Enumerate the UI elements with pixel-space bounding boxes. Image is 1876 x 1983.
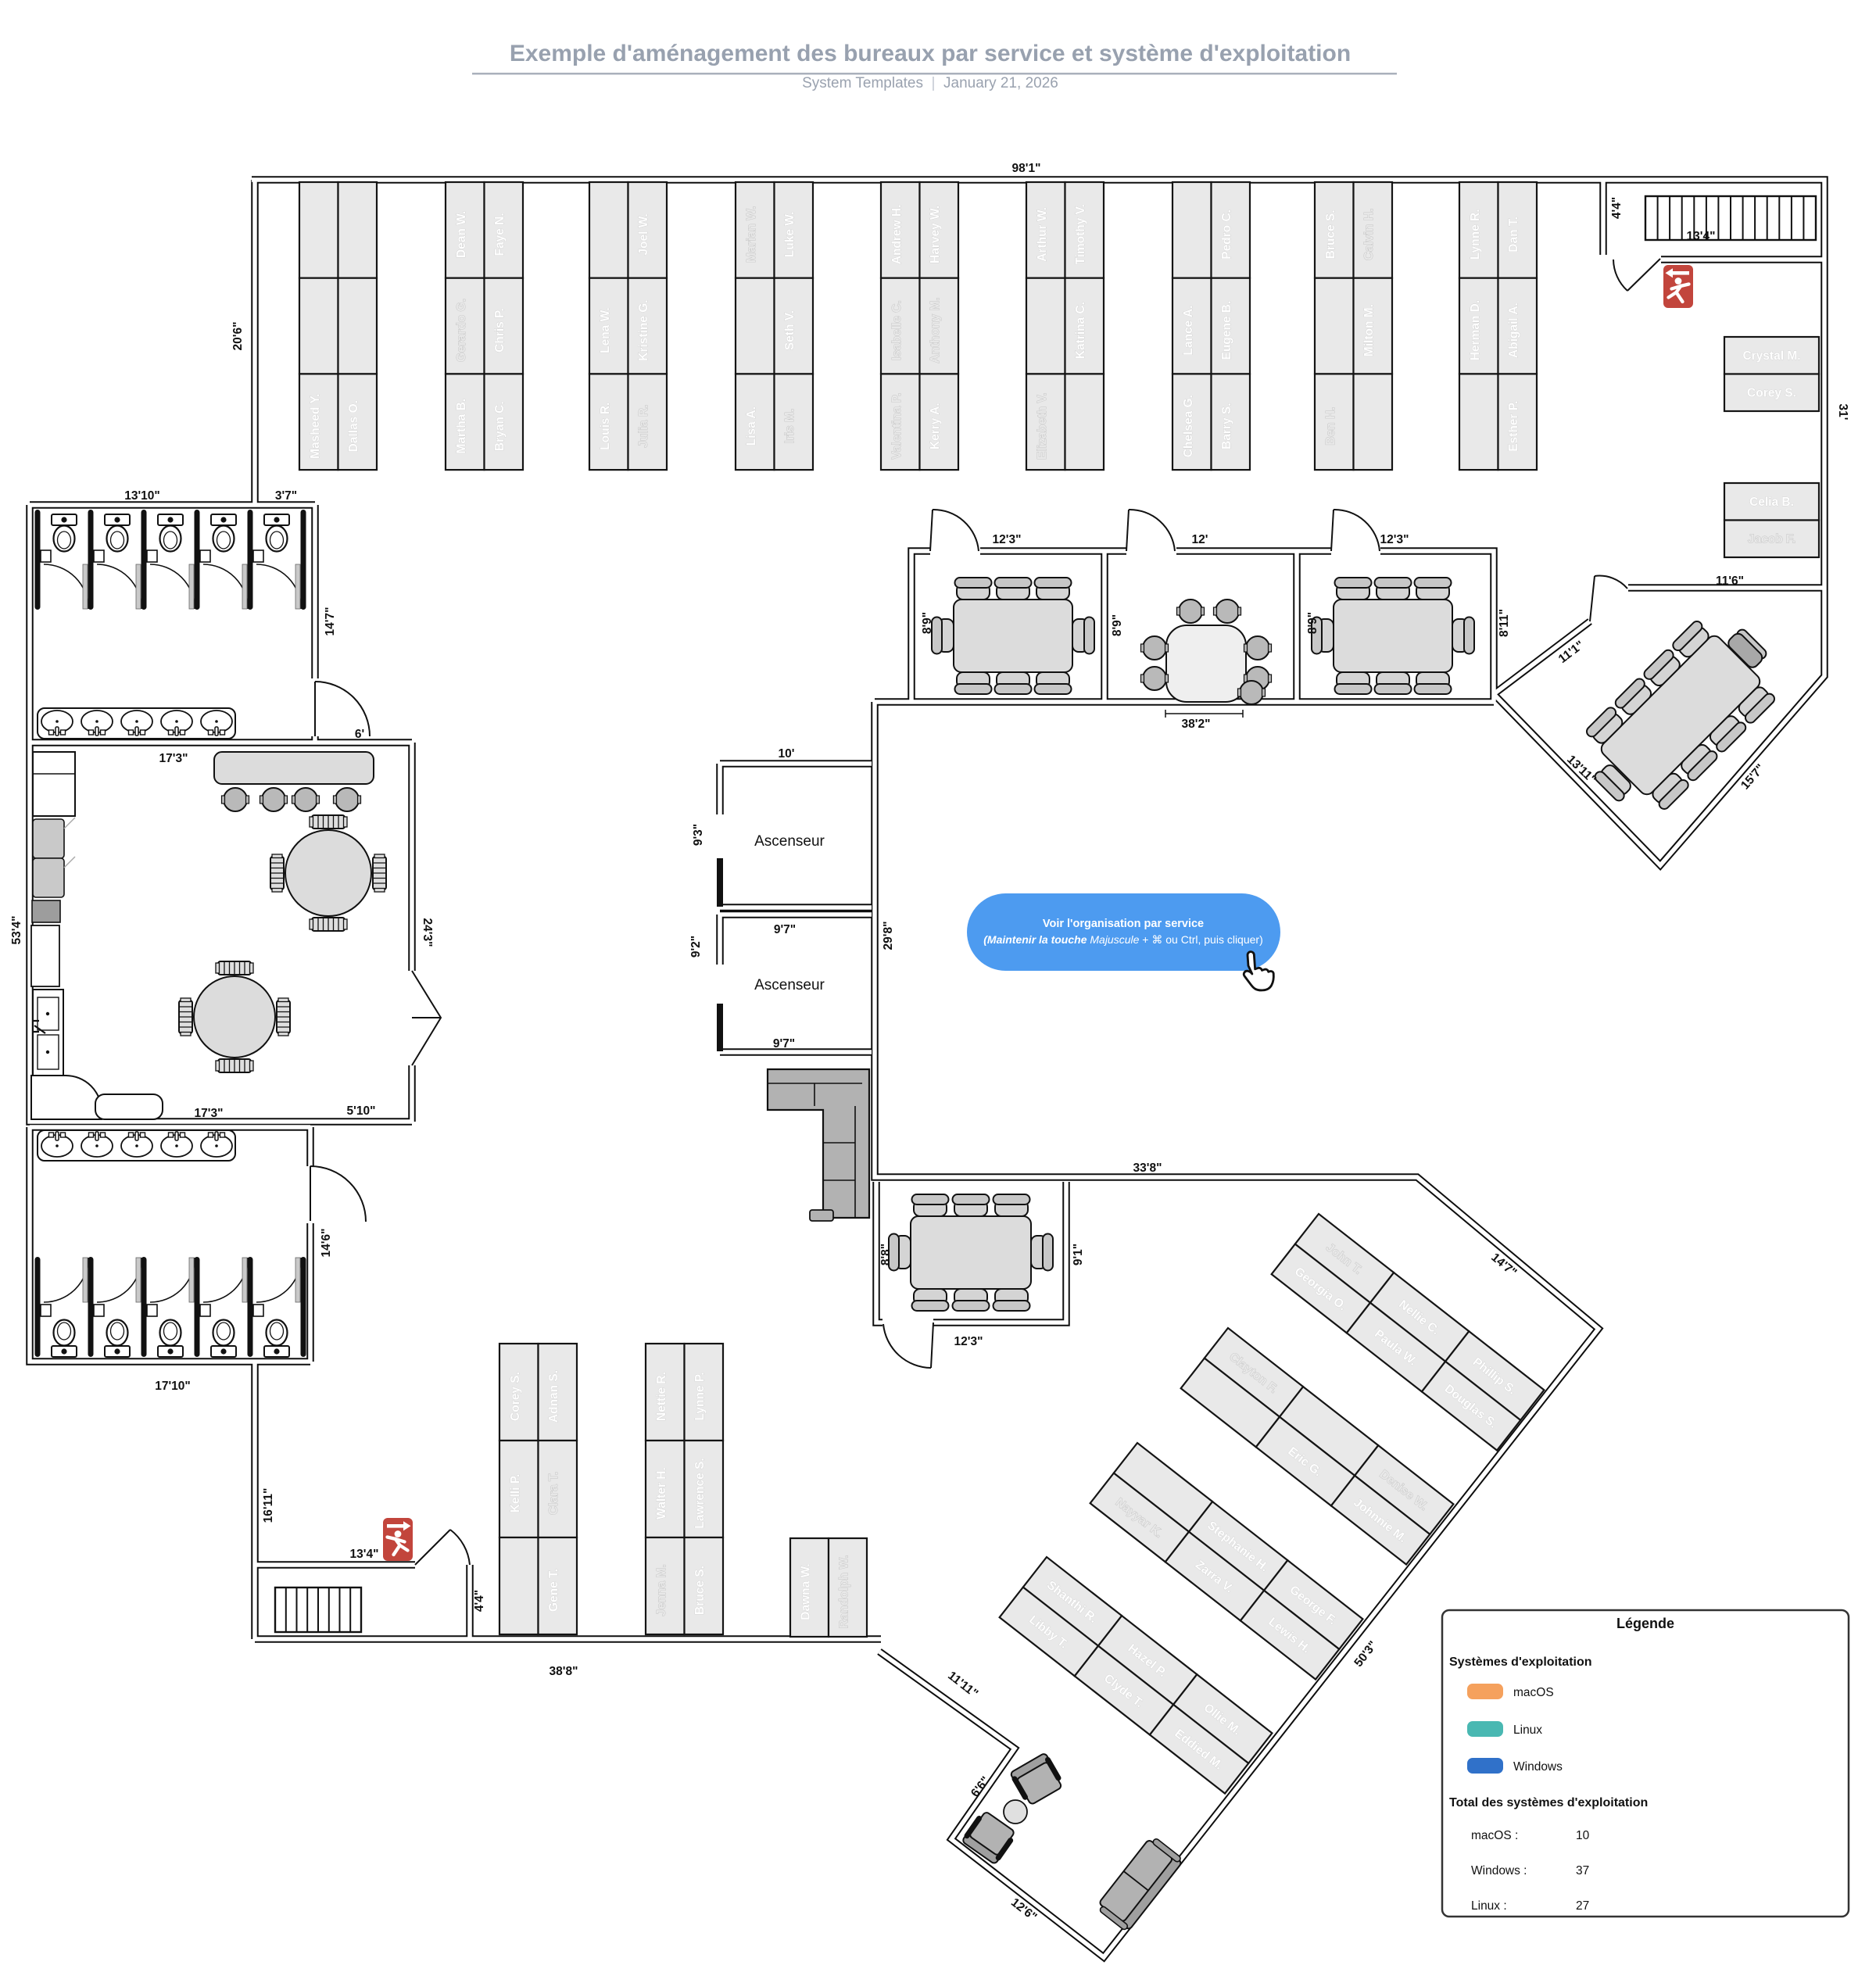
svg-text:9'1": 9'1" <box>1072 1244 1085 1265</box>
svg-text:Walter H.: Walter H. <box>655 1467 668 1519</box>
svg-text:9'7": 9'7" <box>773 1037 795 1051</box>
svg-text:Lena W.: Lena W. <box>599 307 612 353</box>
svg-text:Anthony M.: Anthony M. <box>929 297 942 363</box>
svg-text:12'3": 12'3" <box>993 533 1022 546</box>
svg-text:Corey S.: Corey S. <box>1747 387 1796 400</box>
svg-text:Windows :: Windows : <box>1471 1864 1527 1877</box>
svg-text:Isabelle C.: Isabelle C. <box>890 300 904 360</box>
svg-text:8'9": 8'9" <box>1111 614 1124 636</box>
svg-text:Kerry A.: Kerry A. <box>929 403 942 449</box>
svg-text:4'4": 4'4" <box>1610 197 1624 219</box>
svg-text:Valentina P.: Valentina P. <box>890 393 904 460</box>
svg-text:14'7": 14'7" <box>324 607 337 636</box>
svg-text:Chelsea G.: Chelsea G. <box>1182 395 1195 457</box>
svg-text:Dean W.: Dean W. <box>455 211 468 258</box>
svg-text:Abigail A.: Abigail A. <box>1507 302 1520 358</box>
svg-text:Voir l'organisation par servic: Voir l'organisation par service <box>1043 918 1204 930</box>
svg-text:Marian W.: Marian W. <box>745 206 758 263</box>
svg-text:31': 31' <box>1836 404 1849 421</box>
svg-text:Clara T.: Clara T. <box>547 1472 560 1515</box>
svg-text:13'10": 13'10" <box>124 489 160 503</box>
svg-text:10: 10 <box>1576 1829 1590 1842</box>
svg-text:Harvey W.: Harvey W. <box>929 206 942 263</box>
svg-text:Andrew H.: Andrew H. <box>890 205 904 265</box>
svg-text:Chris P.: Chris P. <box>493 308 507 353</box>
svg-text:38'2": 38'2" <box>1182 718 1211 731</box>
svg-text:Pedro C.: Pedro C. <box>1220 209 1233 260</box>
svg-text:Bruce S.: Bruce S. <box>1324 209 1337 259</box>
svg-text:Kelli P.: Kelli P. <box>509 1474 522 1513</box>
svg-text:13'4": 13'4" <box>1687 230 1716 243</box>
svg-text:System Templates | January 2: System Templates | January 21, 2026 <box>802 75 1058 91</box>
svg-text:Lawrence S.: Lawrence S. <box>693 1458 707 1528</box>
svg-text:Gerardo G.: Gerardo G. <box>455 299 468 362</box>
svg-text:Milton M.: Milton M. <box>1362 304 1376 356</box>
svg-text:33'8": 33'8" <box>1133 1162 1162 1175</box>
svg-text:9'3": 9'3" <box>692 824 705 846</box>
svg-text:Luke W.: Luke W. <box>783 212 797 258</box>
svg-text:8'9": 8'9" <box>921 612 934 634</box>
svg-text:29'8": 29'8" <box>882 922 895 950</box>
svg-text:Seth V.: Seth V. <box>783 310 797 350</box>
svg-text:Bryan C.: Bryan C. <box>493 401 507 451</box>
svg-text:Louis R.: Louis R. <box>599 403 612 450</box>
svg-text:14'6": 14'6" <box>320 1229 333 1258</box>
svg-text:Légende: Légende <box>1616 1616 1674 1631</box>
svg-text:Iris M.: Iris M. <box>783 409 797 444</box>
svg-text:Kristine G.: Kristine G. <box>637 299 650 360</box>
svg-text:5'10": 5'10" <box>347 1104 376 1118</box>
svg-text:Arthur W.: Arthur W. <box>1036 207 1049 262</box>
svg-text:27: 27 <box>1576 1899 1589 1913</box>
svg-text:Linux: Linux <box>1513 1723 1542 1737</box>
svg-text:20'6": 20'6" <box>231 322 245 351</box>
svg-text:9'7": 9'7" <box>774 923 796 936</box>
svg-text:Exemple d'aménagement des bure: Exemple d'aménagement des bureaux par se… <box>510 41 1351 66</box>
svg-text:Ascenseur: Ascenseur <box>754 977 825 993</box>
svg-text:Dan T.: Dan T. <box>1507 217 1520 252</box>
svg-text:11'6": 11'6" <box>1716 574 1744 588</box>
svg-text:Herman D.: Herman D. <box>1469 300 1482 361</box>
svg-text:3'7": 3'7" <box>275 489 297 503</box>
svg-text:Katrina C.: Katrina C. <box>1074 302 1087 359</box>
svg-text:Jenna M.: Jenna M. <box>655 1564 668 1616</box>
svg-text:37: 37 <box>1576 1864 1589 1877</box>
svg-text:17'3": 17'3" <box>159 752 188 765</box>
svg-text:8'9": 8'9" <box>1306 612 1319 634</box>
svg-text:Crystal M.: Crystal M. <box>1742 349 1800 363</box>
svg-text:Linux :: Linux : <box>1471 1899 1507 1913</box>
svg-text:6': 6' <box>355 728 364 741</box>
svg-text:16'11": 16'11" <box>262 1488 275 1523</box>
svg-text:Masheed Y.: Masheed Y. <box>309 394 322 459</box>
svg-text:Esther P.: Esther P. <box>1507 401 1520 452</box>
svg-text:Corey S.: Corey S. <box>509 1372 522 1421</box>
svg-text:17'10": 17'10" <box>155 1380 191 1393</box>
svg-text:Ascenseur: Ascenseur <box>754 833 825 850</box>
svg-text:Systèmes d'exploitation: Systèmes d'exploitation <box>1449 1655 1592 1669</box>
svg-text:13'4": 13'4" <box>350 1548 379 1561</box>
svg-text:Timothy V.: Timothy V. <box>1074 204 1087 265</box>
svg-text:24'3": 24'3" <box>421 918 434 947</box>
svg-text:Julia R.: Julia R. <box>637 405 650 448</box>
svg-text:8'11": 8'11" <box>1498 609 1511 637</box>
svg-text:Lisa A.: Lisa A. <box>745 406 758 446</box>
svg-text:53'4": 53'4" <box>10 916 23 945</box>
svg-text:Lynne R.: Lynne R. <box>1469 209 1482 260</box>
svg-text:4'4": 4'4" <box>473 1590 486 1612</box>
svg-text:9'2": 9'2" <box>689 936 703 957</box>
svg-text:Nettie R.: Nettie R. <box>655 1372 668 1421</box>
svg-text:Total des systèmes d'exploitat: Total des systèmes d'exploitation <box>1449 1796 1648 1809</box>
svg-text:38'8": 38'8" <box>550 1665 578 1678</box>
svg-text:8'8": 8'8" <box>879 1244 893 1265</box>
svg-text:(Maintenir la touche Majuscule: (Maintenir la touche Majuscule + ⌘ ou Ct… <box>983 933 1263 946</box>
svg-text:Dawna W.: Dawna W. <box>800 1563 813 1620</box>
svg-text:Ben H.: Ben H. <box>1324 407 1337 446</box>
svg-text:Lynne P.: Lynne P. <box>693 1372 707 1420</box>
svg-text:macOS :: macOS : <box>1471 1829 1518 1842</box>
svg-text:Windows: Windows <box>1513 1760 1563 1774</box>
svg-text:Adnan S.: Adnan S. <box>547 1370 560 1423</box>
svg-text:Celia B.: Celia B. <box>1749 496 1794 509</box>
svg-text:Bruce S.: Bruce S. <box>693 1566 707 1615</box>
svg-text:10': 10' <box>779 747 795 761</box>
svg-text:98'1": 98'1" <box>1012 162 1041 175</box>
svg-text:Lance A.: Lance A. <box>1182 306 1195 356</box>
svg-text:12'3": 12'3" <box>954 1335 983 1348</box>
svg-text:Dallas O.: Dallas O. <box>347 400 360 452</box>
svg-text:17'3": 17'3" <box>195 1107 224 1120</box>
svg-text:Jacob F.: Jacob F. <box>1748 533 1795 546</box>
svg-text:Faye N.: Faye N. <box>493 213 507 256</box>
svg-text:12': 12' <box>1192 533 1208 546</box>
svg-text:Joel W.: Joel W. <box>637 213 650 255</box>
svg-text:Randolph W.: Randolph W. <box>838 1555 851 1629</box>
svg-text:Eugene B.: Eugene B. <box>1220 301 1233 360</box>
svg-text:macOS: macOS <box>1513 1686 1554 1699</box>
svg-text:Barry S.: Barry S. <box>1220 403 1233 449</box>
svg-text:12'3": 12'3" <box>1380 533 1409 546</box>
svg-text:Calvin H.: Calvin H. <box>1362 209 1376 260</box>
svg-text:Martha B.: Martha B. <box>455 399 468 454</box>
svg-text:Elizabeth V.: Elizabeth V. <box>1036 392 1049 460</box>
svg-text:Gene T.: Gene T. <box>547 1569 560 1612</box>
